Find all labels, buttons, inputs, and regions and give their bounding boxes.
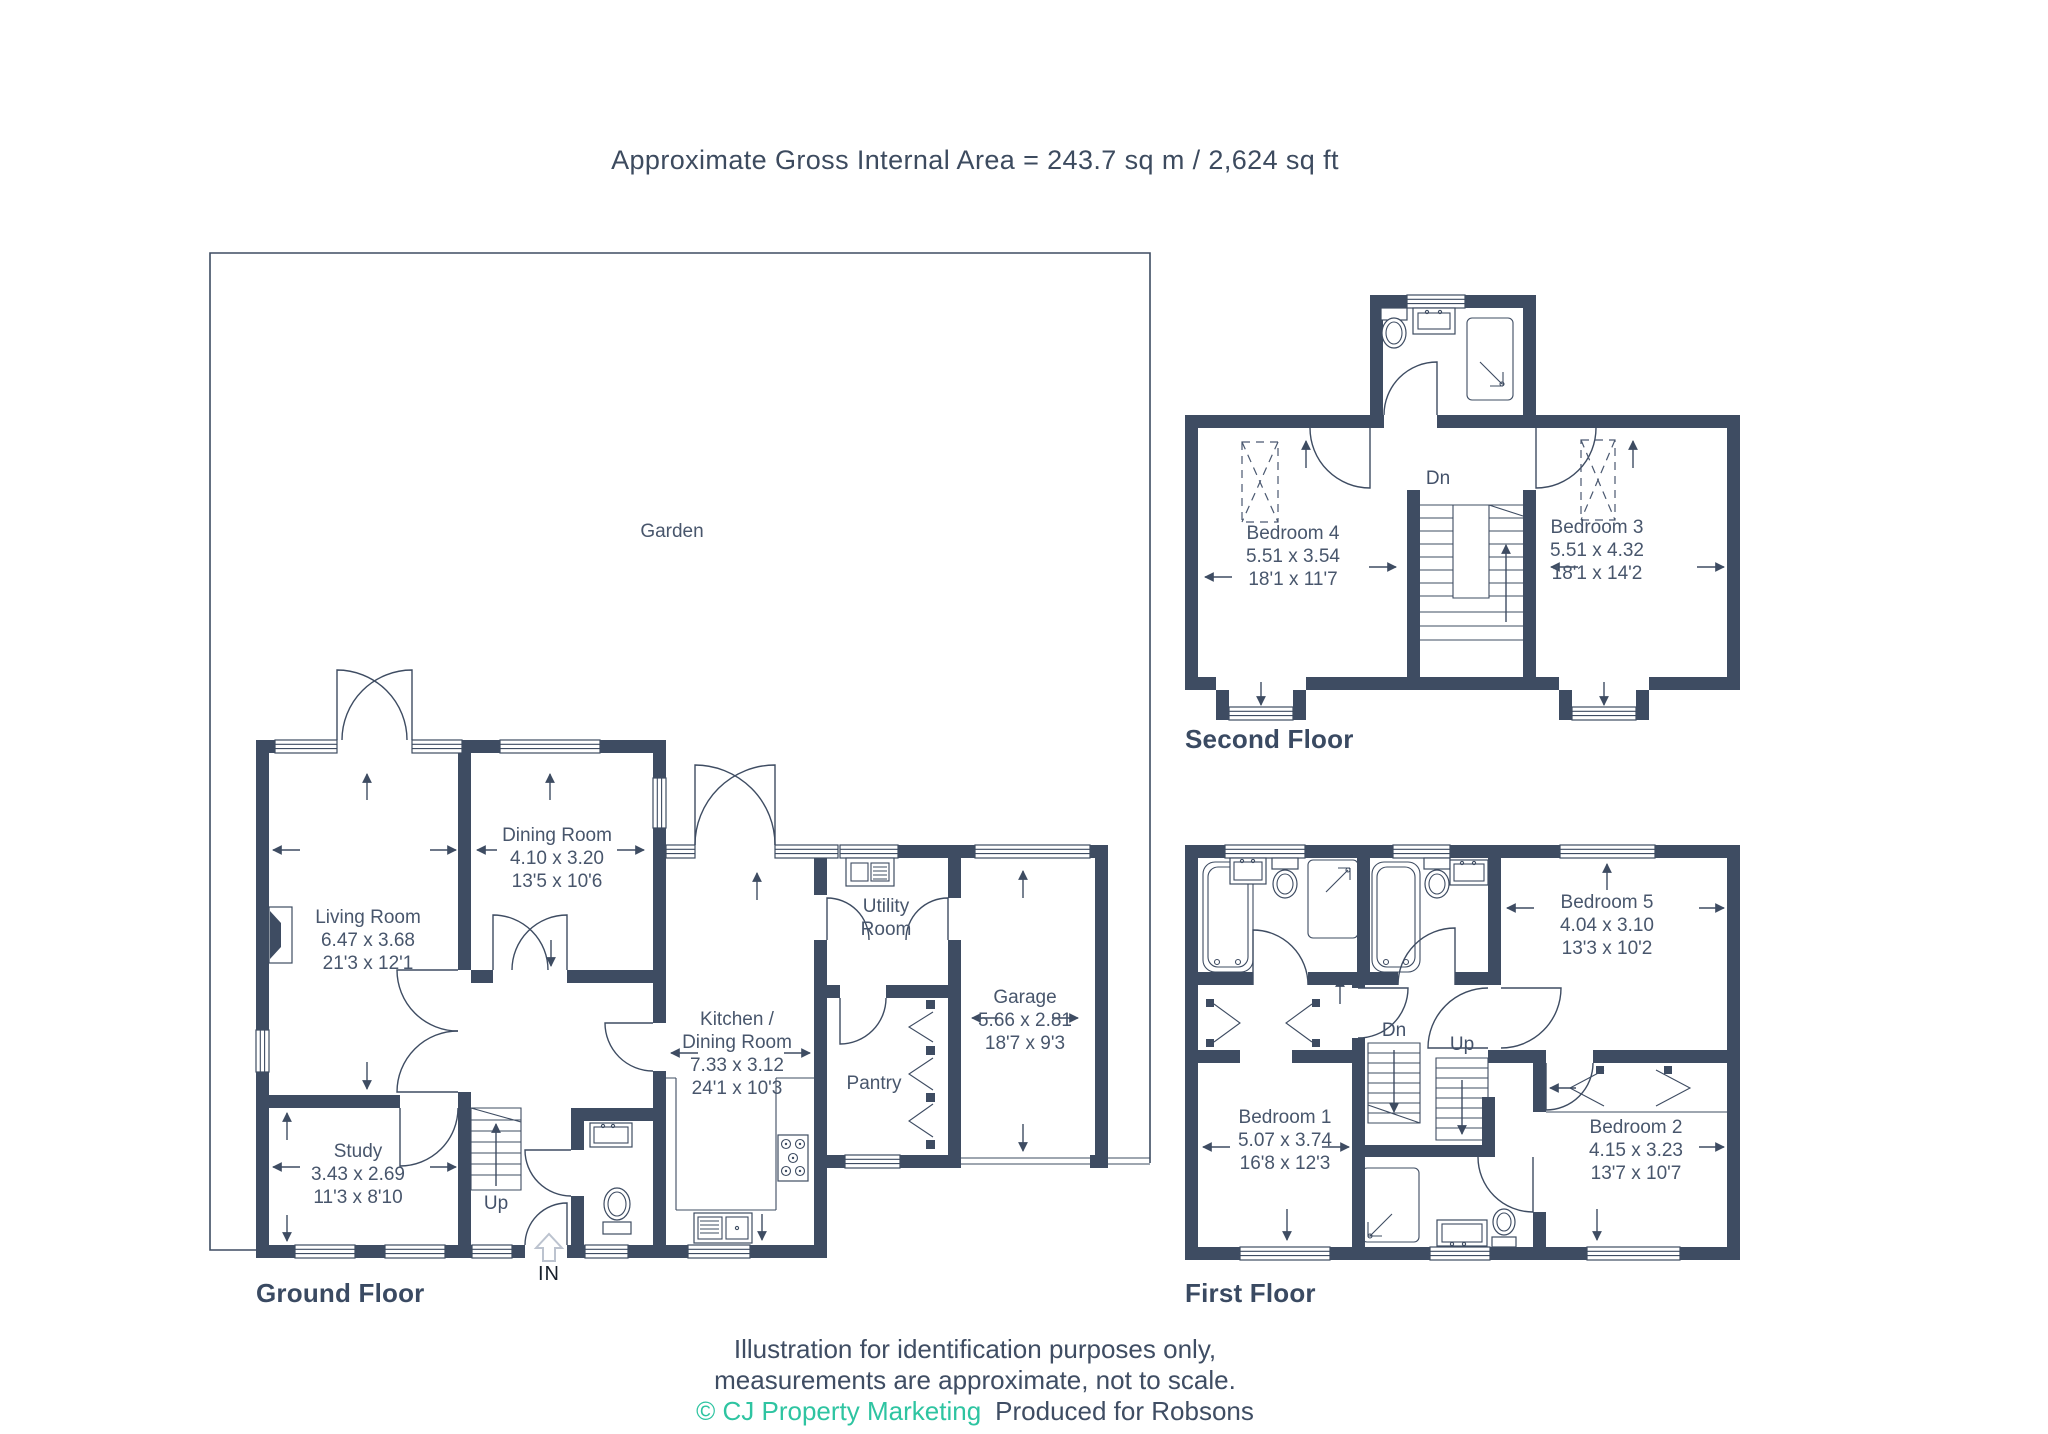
wc-sink-icon [590, 1123, 632, 1147]
ground-staircase [471, 1108, 521, 1190]
ground-stairs-up-label: Up [484, 1193, 508, 1215]
second-windows [1229, 295, 1636, 720]
garage-label: Garage 5.66 x 2.81 18'7 x 9'3 [978, 986, 1072, 1055]
page-title: Approximate Gross Internal Area = 243.7 … [611, 145, 1339, 176]
second-floor-plan [1185, 295, 1740, 720]
first-floor-title: First Floor [1185, 1278, 1316, 1309]
living-room-label: Living Room 6.47 x 3.68 21'3 x 12'1 [315, 906, 421, 975]
wc-toilet-icon [603, 1188, 631, 1234]
copyright-text: © CJ Property Marketing [696, 1396, 981, 1426]
second-stairs-down-label: Dn [1426, 468, 1450, 490]
footer-disclaimer-line2: measurements are approximate, not to sca… [714, 1365, 1236, 1396]
first-stairs-up-label: Up [1450, 1034, 1474, 1056]
produced-for-text: Produced for Robsons [995, 1396, 1254, 1426]
second-walls [1185, 295, 1740, 720]
pantry-label: Pantry [847, 1072, 902, 1095]
entrance-in-label: IN [538, 1263, 560, 1286]
second-staircase [1420, 505, 1523, 640]
bedroom2-label: Bedroom 2 4.15 x 3.23 13'7 x 10'7 [1589, 1116, 1683, 1185]
second-floor-title: Second Floor [1185, 724, 1354, 755]
ensuite-fixtures [1203, 858, 1358, 972]
kitchen-label: Kitchen / Dining Room 7.33 x 3.12 24'1 x… [677, 1008, 797, 1100]
utility-room-label: Utility Room [851, 895, 921, 941]
study-label: Study 3.43 x 2.69 11'3 x 8'10 [311, 1140, 405, 1209]
kitchen-sink-icon [694, 1213, 752, 1243]
first-staircase [1368, 1043, 1488, 1140]
floorplan-page: Approximate Gross Internal Area = 243.7 … [0, 0, 2048, 1434]
ground-floor-title: Ground Floor [256, 1278, 424, 1309]
bedroom5-label: Bedroom 5 4.04 x 3.10 13'3 x 10'2 [1560, 891, 1654, 960]
hob-icon [778, 1135, 808, 1181]
footer-credit-line: © CJ Property MarketingProduced for Robs… [696, 1396, 1254, 1427]
pantry-shelves [909, 1000, 935, 1149]
floorplan-drawing [0, 0, 2048, 1434]
first-stairs-down-label: Dn [1382, 1020, 1406, 1042]
second-bathroom-fixtures [1381, 308, 1513, 400]
entrance-arrow-icon [536, 1234, 562, 1261]
utility-sink-icon [846, 858, 894, 886]
first-bathroom-fixtures [1362, 1168, 1516, 1247]
bedroom1-label: Bedroom 1 5.07 x 3.74 16'8 x 12'3 [1238, 1106, 1332, 1175]
bedroom3-label: Bedroom 3 5.51 x 4.32 18'1 x 14'2 [1550, 516, 1644, 585]
bedroom4-label: Bedroom 4 5.51 x 3.54 18'1 x 11'7 [1246, 522, 1340, 591]
fireplace-icon [269, 907, 292, 963]
bed2-wardrobe [1546, 1066, 1727, 1112]
footer-disclaimer-line1: Illustration for identification purposes… [734, 1334, 1216, 1365]
dressing-wardrobes [1206, 999, 1320, 1047]
bathroom2-fixtures [1372, 858, 1488, 972]
garden-label: Garden [640, 520, 703, 543]
dining-room-label: Dining Room 4.10 x 3.20 13'5 x 10'6 [502, 824, 612, 893]
